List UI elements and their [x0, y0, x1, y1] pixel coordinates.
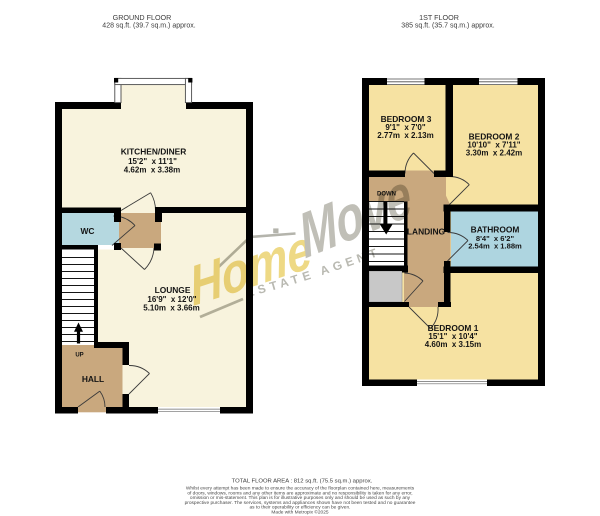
svg-text:1ST FLOOR: 1ST FLOOR: [419, 13, 459, 22]
svg-text:4.62m x 3.38m: 4.62m x 3.38m: [124, 166, 180, 175]
svg-text:5.10m x 3.66m: 5.10m x 3.66m: [143, 304, 199, 313]
svg-text:HALL: HALL: [82, 374, 104, 384]
svg-text:385 sq.ft. (35.7 sq.m.) approx: 385 sq.ft. (35.7 sq.m.) approx.: [401, 23, 494, 30]
svg-text:GROUND FLOOR: GROUND FLOOR: [113, 13, 172, 22]
svg-text:428 sq.ft. (39.7 sq.m.) approx: 428 sq.ft. (39.7 sq.m.) approx.: [102, 23, 195, 30]
svg-text:KITCHEN/DINER: KITCHEN/DINER: [121, 147, 187, 157]
svg-text:LOUNGE: LOUNGE: [155, 285, 191, 295]
svg-text:3.30m x 2.42m: 3.30m x 2.42m: [466, 149, 522, 158]
svg-text:2.77m x 2.13m: 2.77m x 2.13m: [377, 131, 433, 140]
svg-text:4.60m x 3.15m: 4.60m x 3.15m: [425, 340, 481, 349]
svg-text:2.54m x 1.88m: 2.54m x 1.88m: [468, 242, 522, 251]
svg-text:Made with Metropix ©2025: Made with Metropix ©2025: [271, 509, 328, 516]
svg-text:TOTAL FLOOR AREA : 812 sq.ft.: TOTAL FLOOR AREA : 812 sq.ft. (75.5 sq.m…: [232, 479, 373, 485]
svg-text:WC: WC: [81, 226, 95, 236]
svg-text:UP: UP: [75, 353, 83, 359]
svg-text:BATHROOM: BATHROOM: [471, 225, 520, 235]
